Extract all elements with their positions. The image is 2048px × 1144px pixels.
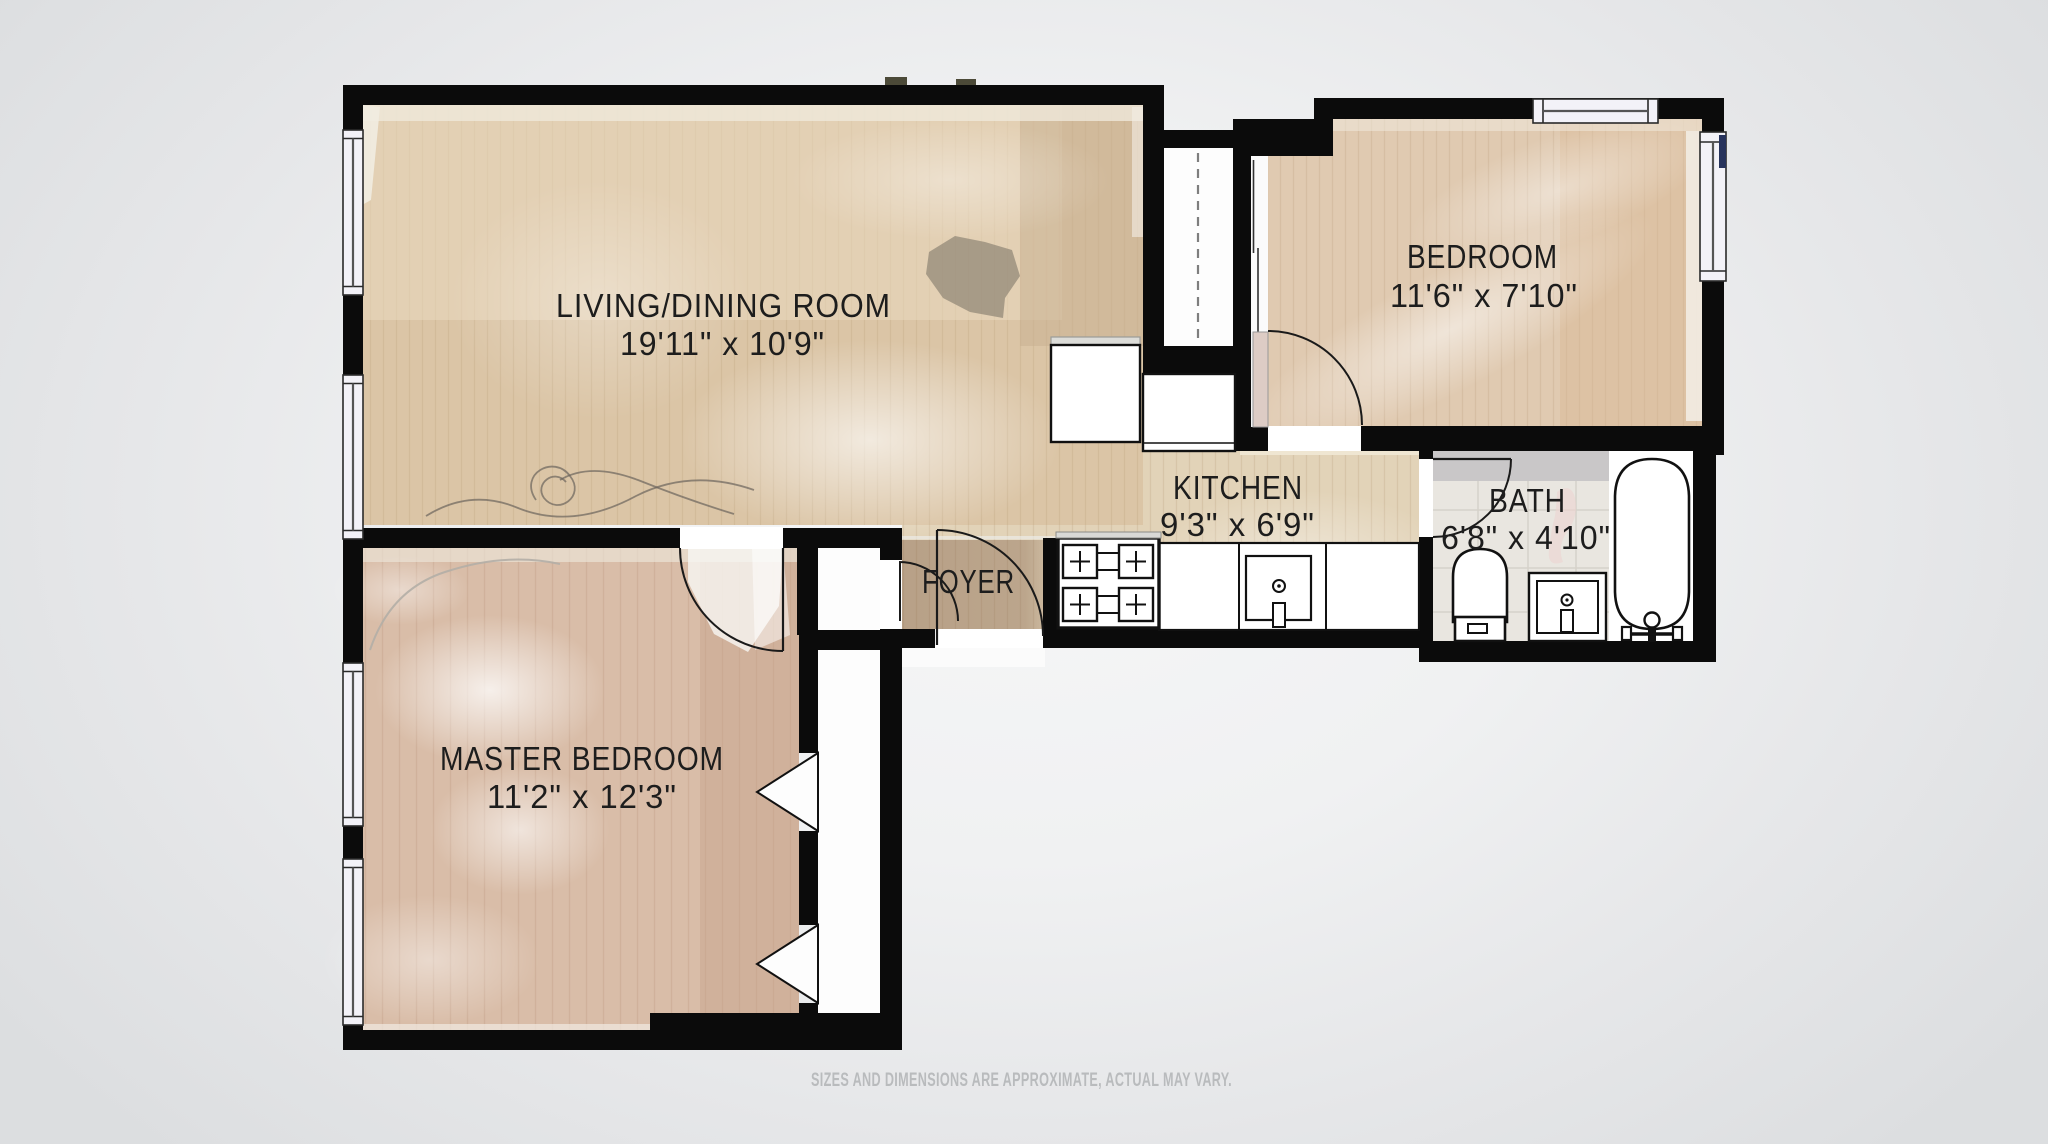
svg-text:BEDROOM: BEDROOM [1407, 238, 1558, 275]
svg-text:11'2" x 12'3": 11'2" x 12'3" [487, 778, 677, 815]
svg-text:19'11" x 10'9": 19'11" x 10'9" [620, 325, 825, 362]
svg-text:FOYER: FOYER [922, 563, 1015, 600]
svg-text:SIZES AND DIMENSIONS ARE APPRO: SIZES AND DIMENSIONS ARE APPROXIMATE, AC… [811, 1070, 1232, 1091]
svg-text:6'8" x 4'10": 6'8" x 4'10" [1441, 519, 1611, 556]
svg-text:LIVING/DINING ROOM: LIVING/DINING ROOM [556, 287, 891, 324]
svg-text:KITCHEN: KITCHEN [1173, 469, 1303, 506]
svg-text:MASTER BEDROOM: MASTER BEDROOM [440, 740, 724, 777]
svg-text:11'6" x 7'10": 11'6" x 7'10" [1390, 277, 1578, 314]
svg-text:BATH: BATH [1489, 482, 1566, 519]
svg-text:9'3" x 6'9": 9'3" x 6'9" [1160, 506, 1315, 543]
